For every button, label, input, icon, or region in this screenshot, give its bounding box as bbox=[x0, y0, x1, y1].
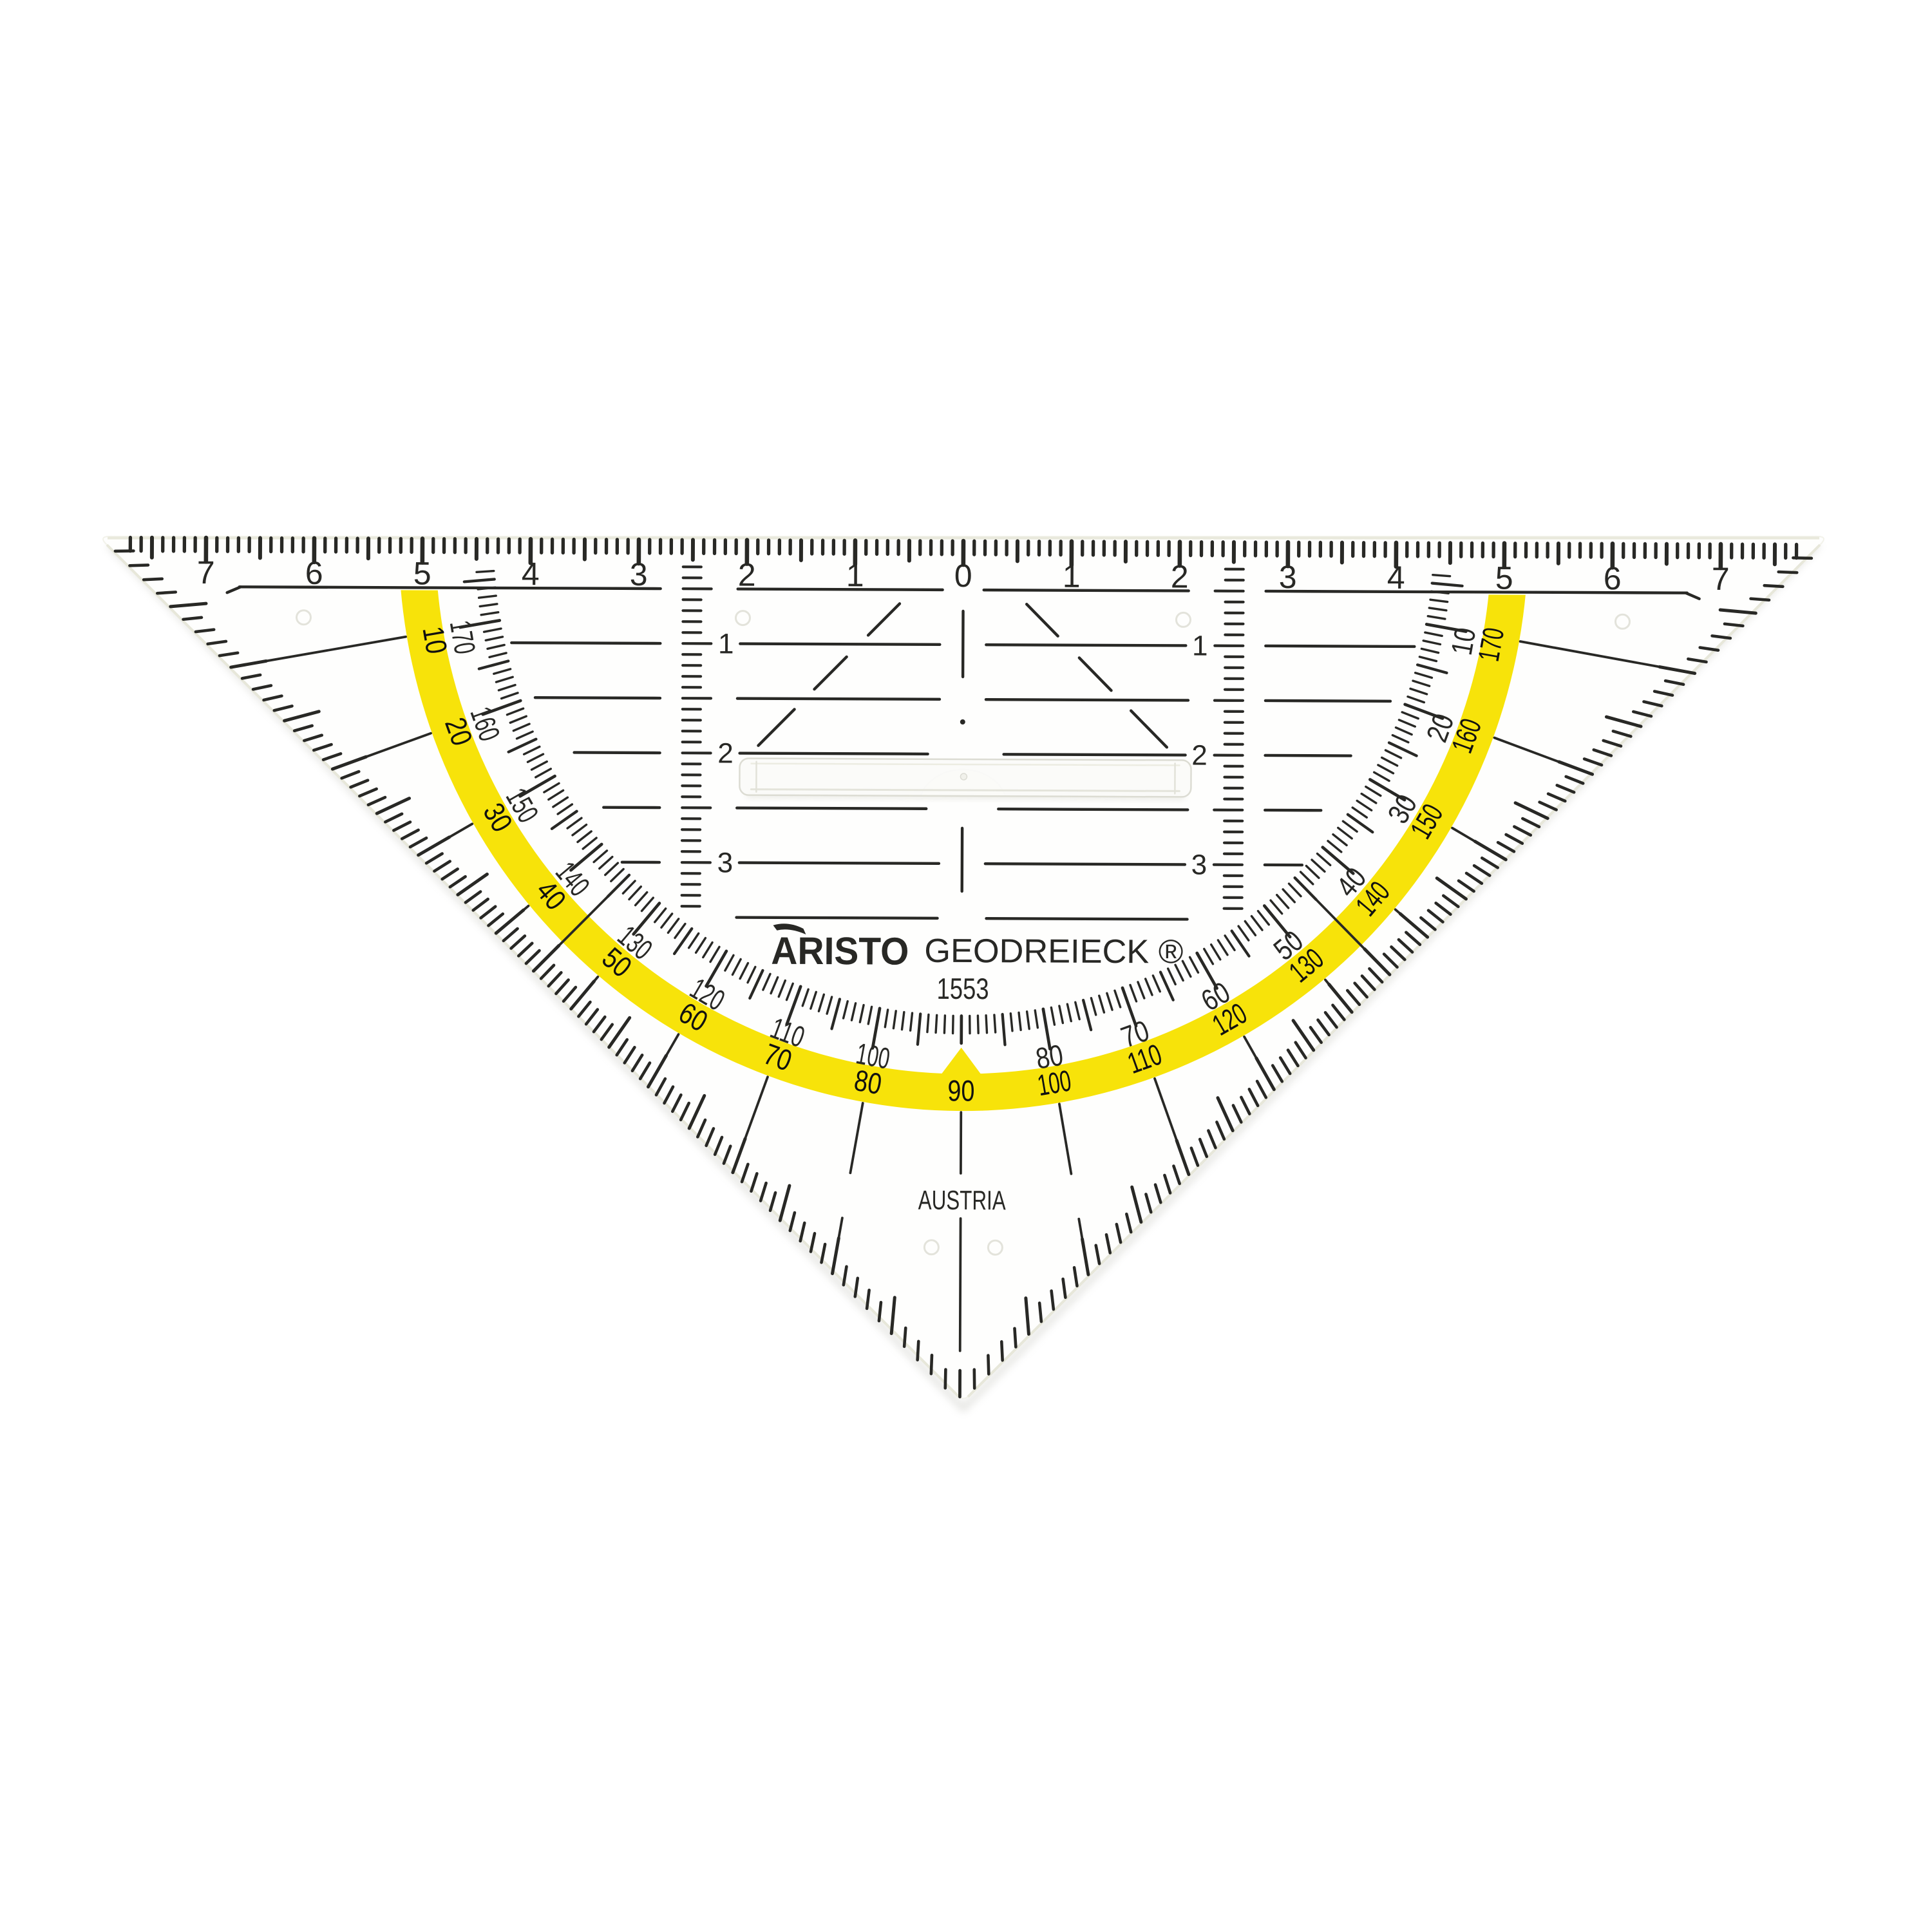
svg-text:6: 6 bbox=[1604, 560, 1622, 596]
svg-text:90: 90 bbox=[947, 1074, 974, 1107]
svg-text:5: 5 bbox=[1495, 560, 1513, 596]
svg-text:3: 3 bbox=[630, 556, 648, 592]
svg-text:3: 3 bbox=[717, 847, 734, 878]
svg-text:3: 3 bbox=[1279, 559, 1297, 595]
svg-text:GEODREIECK ®: GEODREIECK ® bbox=[924, 933, 1183, 971]
svg-text:1: 1 bbox=[1063, 558, 1081, 594]
svg-text:4: 4 bbox=[522, 556, 540, 592]
svg-text:0: 0 bbox=[954, 558, 972, 594]
svg-text:10: 10 bbox=[416, 624, 453, 656]
svg-text:2: 2 bbox=[738, 557, 756, 593]
svg-text:2: 2 bbox=[1171, 558, 1189, 594]
svg-text:AUSTRIA: AUSTRIA bbox=[918, 1185, 1006, 1216]
svg-text:170: 170 bbox=[1472, 625, 1510, 664]
svg-text:1: 1 bbox=[718, 628, 734, 659]
svg-text:7: 7 bbox=[197, 554, 215, 591]
svg-text:3: 3 bbox=[1191, 849, 1207, 880]
svg-text:2: 2 bbox=[1191, 739, 1207, 771]
svg-text:6: 6 bbox=[305, 555, 323, 591]
svg-text:1553: 1553 bbox=[936, 972, 989, 1005]
svg-text:1: 1 bbox=[1192, 630, 1208, 661]
svg-text:4: 4 bbox=[1387, 560, 1405, 596]
svg-text:2: 2 bbox=[717, 737, 734, 769]
svg-text:1: 1 bbox=[846, 557, 864, 593]
svg-text:7: 7 bbox=[1712, 561, 1730, 597]
svg-text:ARISTO: ARISTO bbox=[771, 929, 909, 973]
svg-text:100: 100 bbox=[1035, 1063, 1074, 1102]
svg-text:5: 5 bbox=[413, 555, 431, 591]
